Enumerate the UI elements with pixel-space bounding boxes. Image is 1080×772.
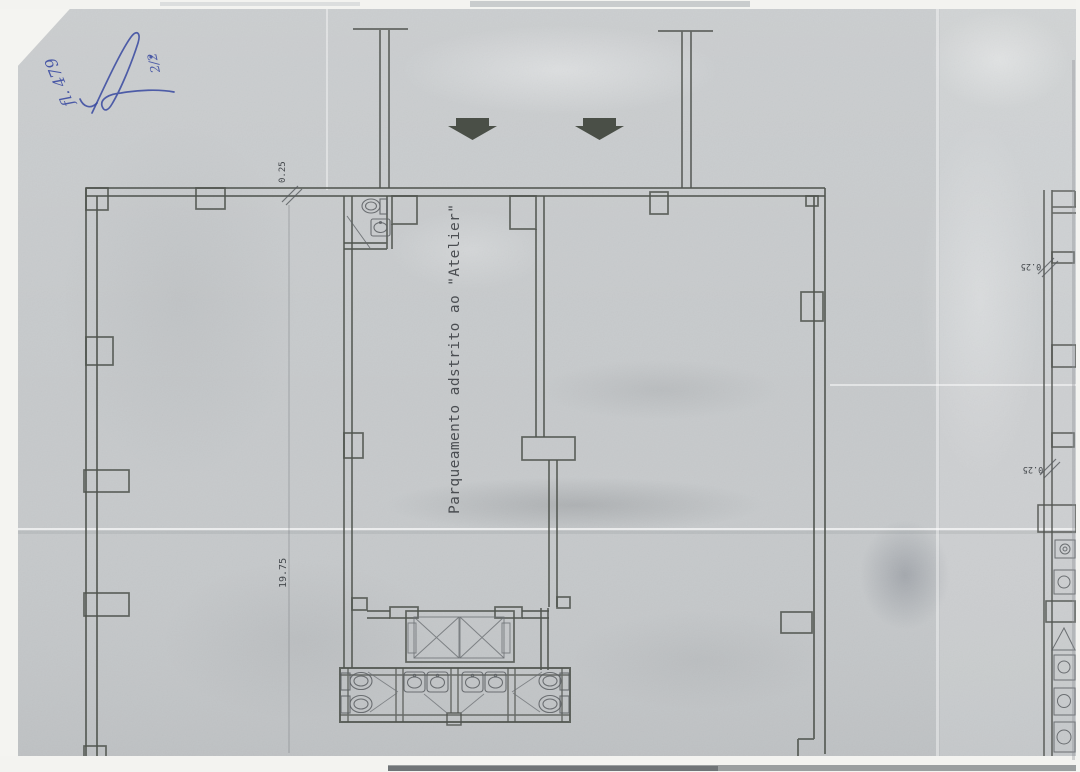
crease-top [326,8,328,190]
dimension-label: 0.25 [1021,261,1041,271]
paper-grain [6,5,1078,759]
top-edge-shadow [470,1,750,7]
right-edge [1076,0,1080,772]
dimension-label: 19.75 [278,558,289,588]
bottom-sheet-line [388,766,718,771]
right-edge-shadow [1072,60,1075,760]
crease-horizontal [18,528,1077,530]
left-edge [0,0,18,772]
dimension-label: 0.25 [1023,464,1043,474]
ink-dot [149,55,152,58]
room-label: Parqueamento adstrito ao "Atelier" [447,204,463,514]
crease-right [830,384,1080,386]
crease-vertical [936,8,939,756]
scanned-floorplan-sheet: 0.25 19.75 Parqueamento adstrito ao "Ate… [0,0,1080,772]
crease-shadow [18,531,1077,534]
floorplan-canvas: 0.25 19.75 Parqueamento adstrito ao "Ate… [0,0,1080,772]
dimension-label: 0.25 [278,161,288,183]
top-edge-shadow [160,2,360,6]
